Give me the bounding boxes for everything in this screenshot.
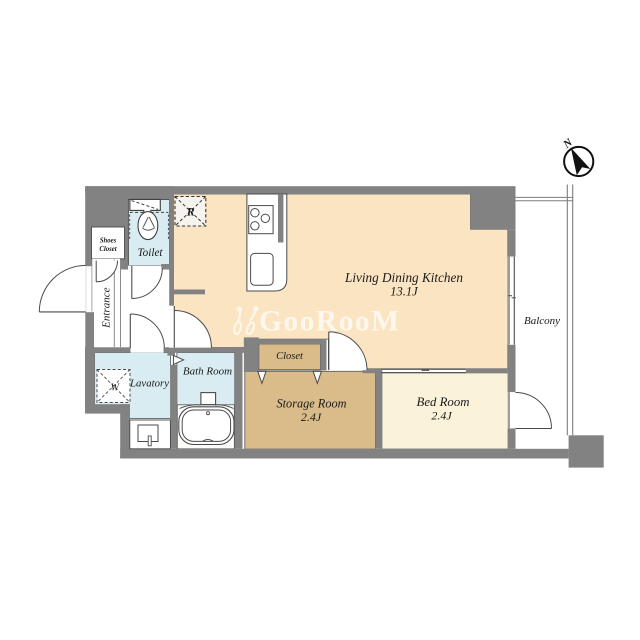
svg-text:Bed Room: Bed Room: [417, 395, 470, 409]
svg-text:2.4J: 2.4J: [301, 410, 322, 424]
svg-text:13.1J: 13.1J: [390, 285, 419, 299]
svg-text:Toilet: Toilet: [137, 247, 163, 259]
svg-text:Lavatory: Lavatory: [129, 378, 169, 390]
svg-text:Closet: Closet: [276, 351, 304, 362]
svg-text:Shoes: Shoes: [100, 238, 117, 245]
svg-text:Balcony: Balcony: [524, 315, 560, 327]
svg-text:2.4J: 2.4J: [431, 409, 452, 423]
svg-text:Bath Room: Bath Room: [183, 366, 232, 378]
svg-text:Entrance: Entrance: [100, 287, 112, 328]
svg-text:Storage Room: Storage Room: [276, 397, 346, 411]
svg-text:R: R: [186, 207, 195, 219]
svg-text:Living Dining Kitchen: Living Dining Kitchen: [344, 270, 463, 285]
svg-text:Closet: Closet: [99, 246, 117, 253]
